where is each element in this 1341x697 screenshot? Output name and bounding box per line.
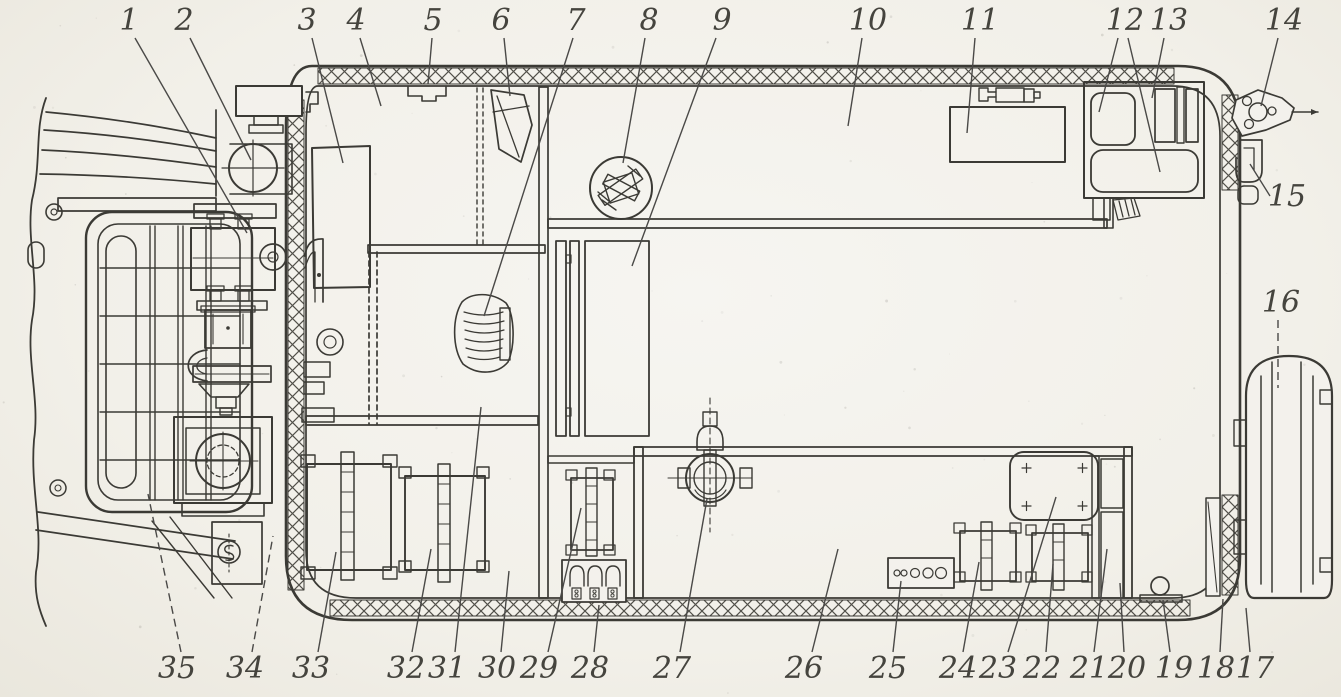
paper-speck	[435, 427, 437, 429]
interior-left	[302, 90, 532, 422]
front-small-ring	[50, 480, 66, 496]
paper-speck	[1031, 182, 1032, 183]
callout-label-3: 3	[297, 3, 316, 38]
paper-speck	[325, 125, 327, 127]
engine-cylinder-dot	[226, 326, 230, 330]
radiator-grille-inner	[98, 224, 240, 500]
paper-speck	[451, 452, 452, 453]
paper-speck	[610, 73, 612, 75]
paper-speck	[1226, 273, 1227, 274]
paper-speck	[1251, 124, 1254, 127]
bumper-line-2	[36, 530, 233, 559]
paper-speck	[52, 107, 54, 109]
ball-valve-19	[1151, 577, 1169, 595]
callout-label-9: 9	[712, 3, 731, 38]
callout-label-10: 10	[849, 3, 887, 38]
partition-connector-right	[1104, 198, 1113, 228]
paper-speck	[784, 414, 785, 415]
paper-speck	[457, 30, 460, 33]
paper-speck	[612, 46, 615, 49]
battery-unit-24	[954, 522, 1021, 590]
paper-speck	[885, 300, 888, 303]
drain-box	[212, 522, 262, 584]
paper-speck	[651, 290, 652, 291]
wall-ring-inner	[324, 336, 336, 348]
paper-speck	[903, 391, 904, 392]
partition-long-horizontal	[548, 219, 1107, 228]
wall-bracket-b	[304, 382, 324, 394]
paper-speck	[1193, 387, 1195, 389]
callout-label-13: 13	[1150, 3, 1188, 38]
callout-label-14: 14	[1265, 3, 1303, 38]
cabinet-9-strip-a	[556, 241, 566, 436]
scoop-6-line2	[493, 106, 529, 112]
bay-26-right-edge	[1124, 447, 1132, 598]
bay-26-left-edge	[634, 447, 643, 598]
paper-speck	[731, 534, 733, 536]
pump-stem	[216, 397, 236, 408]
roof-box	[236, 86, 302, 116]
paper-speck	[770, 295, 771, 296]
hood-line-3	[42, 150, 216, 167]
callout-label-30: 30	[478, 651, 516, 686]
scanned-diagram-page: 1234567891011121314151617181920212223242…	[0, 0, 1341, 697]
paper-speck	[88, 370, 90, 372]
paper-speck	[33, 106, 36, 109]
scoop-6-line1	[497, 96, 519, 157]
locker-12-tray-b	[1091, 150, 1198, 192]
paper-speck	[1104, 415, 1105, 416]
locker-12-fitting	[1113, 198, 1140, 220]
spare-wheel-16	[1234, 356, 1332, 598]
cabinet-9-body	[585, 241, 649, 436]
paper-speck	[1171, 49, 1173, 51]
interior-mid	[556, 157, 652, 436]
engine-cylinder-cap	[201, 306, 255, 312]
body-shell	[286, 66, 1240, 620]
paper-speck	[1101, 34, 1104, 37]
paper-speck	[1243, 184, 1245, 186]
callout-leader-35	[148, 494, 181, 652]
callout-label-33: 33	[292, 651, 330, 686]
device-11-fitting	[979, 88, 1040, 102]
callout-label-16: 16	[1262, 285, 1300, 320]
pump-base-bar	[182, 503, 264, 516]
callout-label-11: 11	[961, 3, 999, 38]
paper-speck	[1135, 202, 1136, 203]
coil-7-bar	[500, 308, 510, 360]
callout-label-26: 26	[784, 651, 823, 686]
radiator-grille-outer	[86, 212, 252, 512]
cabinet-9-strip-b	[570, 241, 579, 436]
device-11	[950, 107, 1065, 162]
callout-label-4: 4	[345, 3, 365, 38]
callout-label-31: 31	[428, 651, 466, 686]
paper-speck	[463, 215, 465, 217]
wall-hatch-top	[318, 68, 1174, 84]
compartment-top-right	[950, 82, 1204, 220]
callout-leader-8	[623, 38, 645, 163]
callout-leader-27	[680, 499, 707, 652]
paper-speck	[96, 17, 97, 18]
locker-12-tray-a	[1091, 93, 1135, 145]
paper-speck	[475, 438, 477, 440]
paper-speck	[1106, 463, 1108, 465]
paper-speck	[139, 626, 142, 629]
paper-speck	[320, 567, 321, 568]
paper-speck	[125, 193, 127, 195]
partition-central-vertical	[539, 87, 548, 598]
front-section	[28, 86, 302, 626]
battery-unit-33	[301, 452, 397, 580]
paper-speck	[1114, 466, 1116, 468]
paper-speck	[402, 374, 405, 377]
callout-label-7: 7	[566, 3, 586, 38]
callout-label-35: 35	[158, 651, 196, 686]
paper-speck	[779, 361, 782, 364]
paper-speck	[1028, 401, 1029, 402]
engine-side-boss	[260, 244, 286, 270]
callout-label-6: 6	[491, 3, 510, 38]
bay-right-box-upper	[1101, 459, 1123, 508]
paper-speck	[940, 594, 943, 597]
callout-label-12: 12	[1106, 3, 1144, 38]
paper-speck	[908, 427, 911, 430]
wall-vent-recess	[408, 87, 446, 101]
battery-unit-22	[1026, 524, 1092, 590]
paper-speck	[1043, 221, 1045, 223]
body-inner-outline	[306, 86, 1220, 598]
paper-speck	[194, 587, 197, 590]
wall-bracket-a	[304, 362, 330, 377]
paper-speck	[920, 90, 921, 91]
paper-speck	[509, 478, 511, 480]
radiator-capsule	[106, 236, 136, 488]
socket-panel-25	[888, 558, 954, 588]
radiator-ring-inner	[51, 209, 57, 215]
paper-speck	[3, 401, 5, 403]
paper-speck	[1212, 434, 1215, 437]
paper-speck	[217, 446, 220, 449]
wall-pipe-dot	[317, 273, 321, 277]
paper-speck	[1009, 479, 1011, 481]
tank-23	[1010, 452, 1098, 520]
paper-speck	[293, 64, 295, 66]
paper-speck	[1146, 275, 1148, 277]
valve-27	[668, 398, 752, 532]
callout-label-22: 22	[1022, 651, 1061, 686]
paper-speck	[983, 459, 985, 461]
paper-speck	[604, 195, 607, 198]
callout-label-21: 21	[1069, 651, 1108, 686]
paper-speck	[827, 41, 829, 43]
callout-label-25: 25	[868, 651, 907, 686]
callout-label-19: 19	[1155, 651, 1193, 686]
callout-label-24: 24	[938, 651, 977, 686]
scan-noise	[3, 15, 1306, 694]
front-small-oval	[28, 242, 44, 268]
radiator-top-bar	[58, 198, 216, 211]
paper-speck	[844, 407, 846, 409]
locker-12-step	[1093, 198, 1110, 220]
body-outer-outline	[286, 66, 1240, 620]
paper-speck	[75, 284, 77, 286]
callout-label-1: 1	[119, 3, 138, 38]
wall-hatch-right-bottom	[1222, 495, 1238, 595]
fan-8-blades	[598, 166, 643, 210]
paper-speck	[441, 376, 443, 378]
paper-speck	[528, 278, 529, 279]
paper-speck	[850, 160, 852, 162]
paper-speck	[336, 673, 338, 675]
paper-speck	[65, 157, 67, 159]
vehicle-cutaway-diagram: 1234567891011121314151617181920212223242…	[0, 0, 1341, 697]
partition-mid-bottom	[306, 416, 538, 425]
torn-edge	[30, 98, 46, 626]
exterior-right	[1232, 90, 1332, 598]
callout-label-32: 32	[387, 651, 425, 686]
paper-speck	[262, 433, 263, 434]
radiator-ring	[46, 204, 62, 220]
callout-label-8: 8	[639, 3, 658, 38]
paper-speck	[862, 603, 864, 605]
partition-mid-top	[368, 245, 545, 253]
small-bay-top-edge	[548, 456, 634, 463]
coil-7-windings	[464, 312, 504, 360]
paper-speck	[913, 368, 916, 371]
paper-speck	[238, 519, 240, 521]
callout-label-15: 15	[1268, 179, 1306, 214]
callout-label-29: 29	[519, 651, 558, 686]
cylinders-13	[1155, 87, 1198, 143]
paper-speck	[949, 354, 950, 355]
paper-speck	[1276, 169, 1278, 171]
roof-box-pedestal-a	[254, 116, 278, 125]
paper-speck	[777, 490, 780, 493]
callout-label-5: 5	[423, 3, 442, 38]
battery-unit-32	[399, 464, 489, 582]
callout-leader-3	[312, 38, 343, 163]
paper-speck	[971, 634, 974, 637]
paper-speck	[1081, 423, 1083, 425]
paper-speck	[948, 616, 950, 618]
callout-leader-1	[135, 38, 247, 233]
paper-speck	[890, 15, 893, 18]
paper-speck	[411, 113, 412, 114]
callout-label-28: 28	[570, 651, 609, 686]
callout-label-23: 23	[978, 651, 1017, 686]
radiator-grid-lines	[100, 226, 240, 500]
paper-speck	[59, 25, 61, 27]
wall-hatch-left	[288, 100, 304, 590]
paper-speck	[549, 216, 551, 218]
paper-speck	[1159, 439, 1161, 441]
engine-block	[191, 228, 275, 290]
paper-speck	[676, 535, 678, 537]
paper-speck	[571, 482, 573, 484]
fan-8	[590, 157, 652, 219]
callout-label-18: 18	[1197, 651, 1235, 686]
paper-speck	[374, 173, 377, 176]
callout-leader-17	[1246, 608, 1250, 652]
engine-side-boss-inner	[268, 252, 278, 262]
filler-valve-14	[1232, 90, 1318, 136]
paper-speck	[1014, 300, 1017, 303]
callout-label-17: 17	[1236, 651, 1275, 686]
paper-speck	[727, 692, 729, 694]
paper-speck	[721, 311, 724, 314]
paper-speck	[360, 54, 363, 57]
paper-speck	[1303, 364, 1305, 366]
callout-label-20: 20	[1107, 651, 1146, 686]
hood-line-4	[40, 174, 216, 184]
paper-speck	[1120, 297, 1123, 300]
wall-ring	[317, 329, 343, 355]
paper-speck	[249, 491, 250, 492]
callout-label-2: 2	[173, 3, 193, 38]
cabinet-3	[312, 146, 370, 288]
connector-block-28	[562, 560, 626, 602]
callout-label-27: 27	[652, 651, 692, 686]
paper-speck	[701, 320, 703, 322]
scoop-6	[491, 90, 532, 162]
roof-box-pedestal-b	[249, 125, 283, 133]
paper-speck	[1026, 629, 1027, 630]
paper-speck	[952, 467, 954, 469]
equipment-bottom-left	[301, 452, 634, 602]
callout-label-34: 34	[226, 651, 264, 686]
equipment-bottom-right	[634, 398, 1220, 602]
paper-speck	[1178, 86, 1180, 88]
front-small-ring-inner	[55, 485, 61, 491]
